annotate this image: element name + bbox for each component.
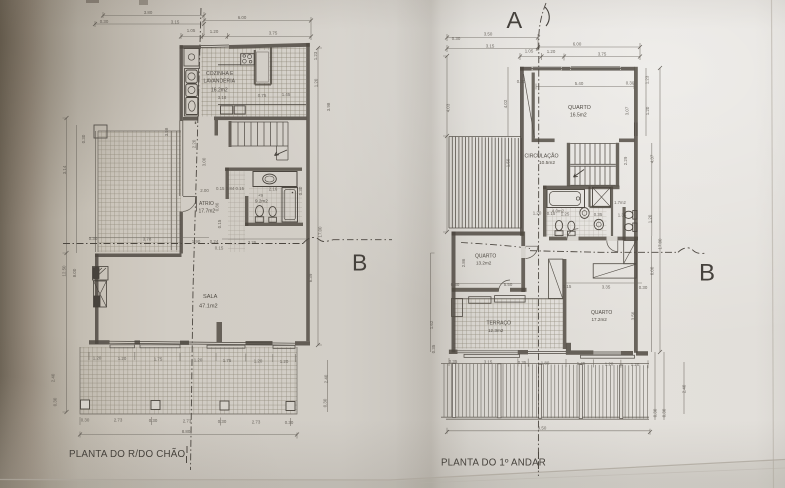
svg-text:COZINHA E: COZINHA E bbox=[206, 71, 234, 77]
svg-text:0.30: 0.30 bbox=[653, 408, 658, 417]
svg-text:0.35: 0.35 bbox=[594, 212, 603, 217]
svg-text:1.05: 1.05 bbox=[187, 28, 196, 33]
svg-text:0.30: 0.30 bbox=[218, 419, 227, 424]
svg-text:3.00: 3.00 bbox=[202, 157, 207, 166]
svg-text:1.20: 1.20 bbox=[93, 356, 102, 361]
svg-text:3.14: 3.14 bbox=[62, 165, 67, 174]
svg-text:3.50: 3.50 bbox=[484, 32, 493, 37]
svg-text:1.23: 1.23 bbox=[313, 51, 318, 60]
svg-text:1.80: 1.80 bbox=[541, 361, 550, 366]
svg-text:0.86: 0.86 bbox=[215, 202, 220, 211]
svg-text:9.2m2: 9.2m2 bbox=[255, 199, 268, 204]
svg-text:0.35: 0.35 bbox=[518, 360, 527, 365]
svg-text:1.20: 1.20 bbox=[547, 49, 556, 54]
svg-text:1.20: 1.20 bbox=[118, 356, 127, 361]
svg-text:1.20: 1.20 bbox=[605, 362, 614, 367]
svg-text:0.30: 0.30 bbox=[323, 398, 328, 407]
svg-text:17.7m2: 17.7m2 bbox=[199, 209, 216, 215]
svg-text:0.30: 0.30 bbox=[100, 19, 109, 24]
svg-text:0.30: 0.30 bbox=[149, 418, 158, 423]
svg-text:0.30: 0.30 bbox=[81, 134, 86, 143]
svg-text:13.2m2: 13.2m2 bbox=[476, 261, 492, 266]
svg-text:2.16: 2.16 bbox=[269, 187, 278, 192]
svg-text:1.7m2: 1.7m2 bbox=[614, 200, 626, 205]
svg-text:0.15: 0.15 bbox=[563, 284, 572, 289]
svg-text:PLANTA DO 1º ANDAR: PLANTA DO 1º ANDAR bbox=[441, 458, 546, 469]
svg-text:1.20: 1.20 bbox=[280, 359, 289, 364]
svg-text:3.15: 3.15 bbox=[171, 20, 180, 25]
svg-text:0.30: 0.30 bbox=[452, 36, 461, 41]
svg-text:1.20: 1.20 bbox=[645, 106, 650, 115]
svg-text:0.30: 0.30 bbox=[626, 81, 635, 86]
svg-text:10.5m2: 10.5m2 bbox=[539, 160, 555, 166]
svg-text:0.35: 0.35 bbox=[431, 344, 436, 353]
svg-text:0.30: 0.30 bbox=[298, 186, 303, 195]
svg-text:2.73: 2.73 bbox=[252, 420, 261, 425]
svg-text:0.30: 0.30 bbox=[662, 408, 667, 417]
svg-text:1.20: 1.20 bbox=[631, 362, 640, 367]
svg-text:2.86: 2.86 bbox=[461, 258, 466, 267]
svg-text:3.25: 3.25 bbox=[248, 240, 257, 245]
svg-text:0.15: 0.15 bbox=[215, 246, 224, 251]
svg-text:1.05: 1.05 bbox=[525, 49, 534, 54]
svg-text:17.00: 17.00 bbox=[658, 238, 663, 250]
svg-text:12.50: 12.50 bbox=[62, 265, 67, 277]
svg-text:1.20: 1.20 bbox=[194, 358, 203, 363]
svg-text:1.20: 1.20 bbox=[314, 78, 319, 87]
svg-text:4.02: 4.02 bbox=[503, 99, 508, 108]
svg-text:+S: +S bbox=[258, 193, 263, 198]
svg-text:QUARTO: QUARTO bbox=[568, 105, 591, 111]
svg-text:3.15: 3.15 bbox=[486, 44, 495, 49]
svg-text:0.30: 0.30 bbox=[89, 236, 98, 241]
svg-text:17.2m2: 17.2m2 bbox=[592, 317, 608, 322]
svg-text:1.35: 1.35 bbox=[618, 213, 627, 218]
svg-text:16.2m2: 16.2m2 bbox=[211, 88, 228, 94]
svg-text:QUARTO: QUARTO bbox=[475, 254, 496, 260]
svg-text:5.40: 5.40 bbox=[575, 81, 584, 86]
svg-text:0.30: 0.30 bbox=[53, 397, 58, 406]
svg-text:12.3m2: 12.3m2 bbox=[488, 328, 504, 333]
svg-text:0.15 0.84 0.15: 0.15 0.84 0.15 bbox=[216, 186, 245, 191]
svg-text:2.40: 2.40 bbox=[682, 384, 687, 393]
svg-text:0.35: 0.35 bbox=[449, 359, 458, 364]
svg-text:QUARTO: QUARTO bbox=[591, 310, 612, 316]
svg-text:0.30: 0.30 bbox=[81, 418, 90, 423]
svg-text:2.40: 2.40 bbox=[324, 374, 329, 383]
svg-text:1.20: 1.20 bbox=[533, 211, 542, 216]
svg-text:1.75: 1.75 bbox=[223, 358, 232, 363]
svg-text:1.20: 1.20 bbox=[254, 359, 263, 364]
svg-text:3.35: 3.35 bbox=[602, 285, 611, 290]
svg-text:3.78: 3.78 bbox=[143, 237, 152, 242]
svg-text:1.50: 1.50 bbox=[506, 158, 511, 167]
svg-text:1.45: 1.45 bbox=[282, 92, 291, 97]
svg-text:B: B bbox=[352, 250, 367, 276]
svg-text:16.5m2: 16.5m2 bbox=[570, 113, 587, 119]
svg-text:0.30: 0.30 bbox=[285, 420, 294, 425]
svg-text:0.30: 0.30 bbox=[639, 285, 648, 290]
svg-text:1.62: 1.62 bbox=[429, 320, 434, 329]
svg-text:17.00: 17.00 bbox=[318, 226, 323, 238]
svg-text:1.20: 1.20 bbox=[648, 214, 653, 223]
svg-text:8.00: 8.00 bbox=[72, 268, 77, 277]
svg-text:PLANTA DO R/DO CHÃO: PLANTA DO R/DO CHÃO bbox=[69, 449, 185, 460]
svg-text:3.15: 3.15 bbox=[484, 360, 493, 365]
svg-text:9.50: 9.50 bbox=[538, 426, 547, 431]
svg-text:2.00: 2.00 bbox=[200, 188, 209, 193]
svg-text:4.0m2: 4.0m2 bbox=[552, 209, 565, 214]
svg-text:1.45: 1.45 bbox=[577, 361, 586, 366]
svg-text:CIRCULAÇÃO: CIRCULAÇÃO bbox=[525, 153, 559, 160]
svg-text:6.00: 6.00 bbox=[573, 42, 582, 47]
svg-text:6.00: 6.00 bbox=[238, 15, 247, 20]
svg-text:ATRIO: ATRIO bbox=[199, 201, 214, 207]
svg-text:0.75: 0.75 bbox=[258, 93, 267, 98]
svg-text:TERRAÇO: TERRAÇO bbox=[487, 321, 512, 327]
svg-text:1.75: 1.75 bbox=[154, 357, 163, 362]
svg-text:6.00: 6.00 bbox=[650, 266, 655, 275]
svg-text:3.18: 3.18 bbox=[218, 95, 227, 100]
svg-text:LAVANDERIA: LAVANDERIA bbox=[204, 79, 236, 85]
svg-text:SALA: SALA bbox=[203, 294, 218, 300]
svg-text:2.73: 2.73 bbox=[114, 418, 123, 423]
svg-text:4.03: 4.03 bbox=[446, 103, 451, 112]
svg-text:4.37: 4.37 bbox=[650, 154, 655, 163]
svg-text:0.30: 0.30 bbox=[451, 282, 460, 287]
svg-text:0.30: 0.30 bbox=[517, 79, 526, 84]
svg-text:2.40: 2.40 bbox=[51, 373, 56, 382]
svg-text:0.15: 0.15 bbox=[217, 219, 222, 228]
svg-text:3.75: 3.75 bbox=[598, 52, 607, 57]
svg-text:3.98: 3.98 bbox=[326, 102, 331, 111]
svg-text:A: A bbox=[507, 7, 523, 33]
svg-text:2.20: 2.20 bbox=[192, 139, 197, 148]
svg-text:1.20: 1.20 bbox=[210, 29, 219, 34]
svg-text:3.80: 3.80 bbox=[144, 10, 153, 15]
svg-text:47.1m2: 47.1m2 bbox=[199, 304, 218, 310]
svg-text:6.39: 6.39 bbox=[308, 273, 313, 282]
svg-text:3.56: 3.56 bbox=[631, 311, 636, 320]
svg-text:B: B bbox=[699, 260, 715, 287]
svg-text:2.29: 2.29 bbox=[623, 156, 628, 165]
svg-text:5.50: 5.50 bbox=[504, 282, 513, 287]
svg-text:2.73: 2.73 bbox=[183, 419, 192, 424]
svg-text:3.07: 3.07 bbox=[625, 106, 630, 115]
svg-text:1.23: 1.23 bbox=[645, 75, 650, 84]
svg-text:3.75: 3.75 bbox=[269, 31, 278, 36]
svg-text:8.80: 8.80 bbox=[182, 429, 191, 434]
svg-text:3.58: 3.58 bbox=[164, 127, 169, 136]
